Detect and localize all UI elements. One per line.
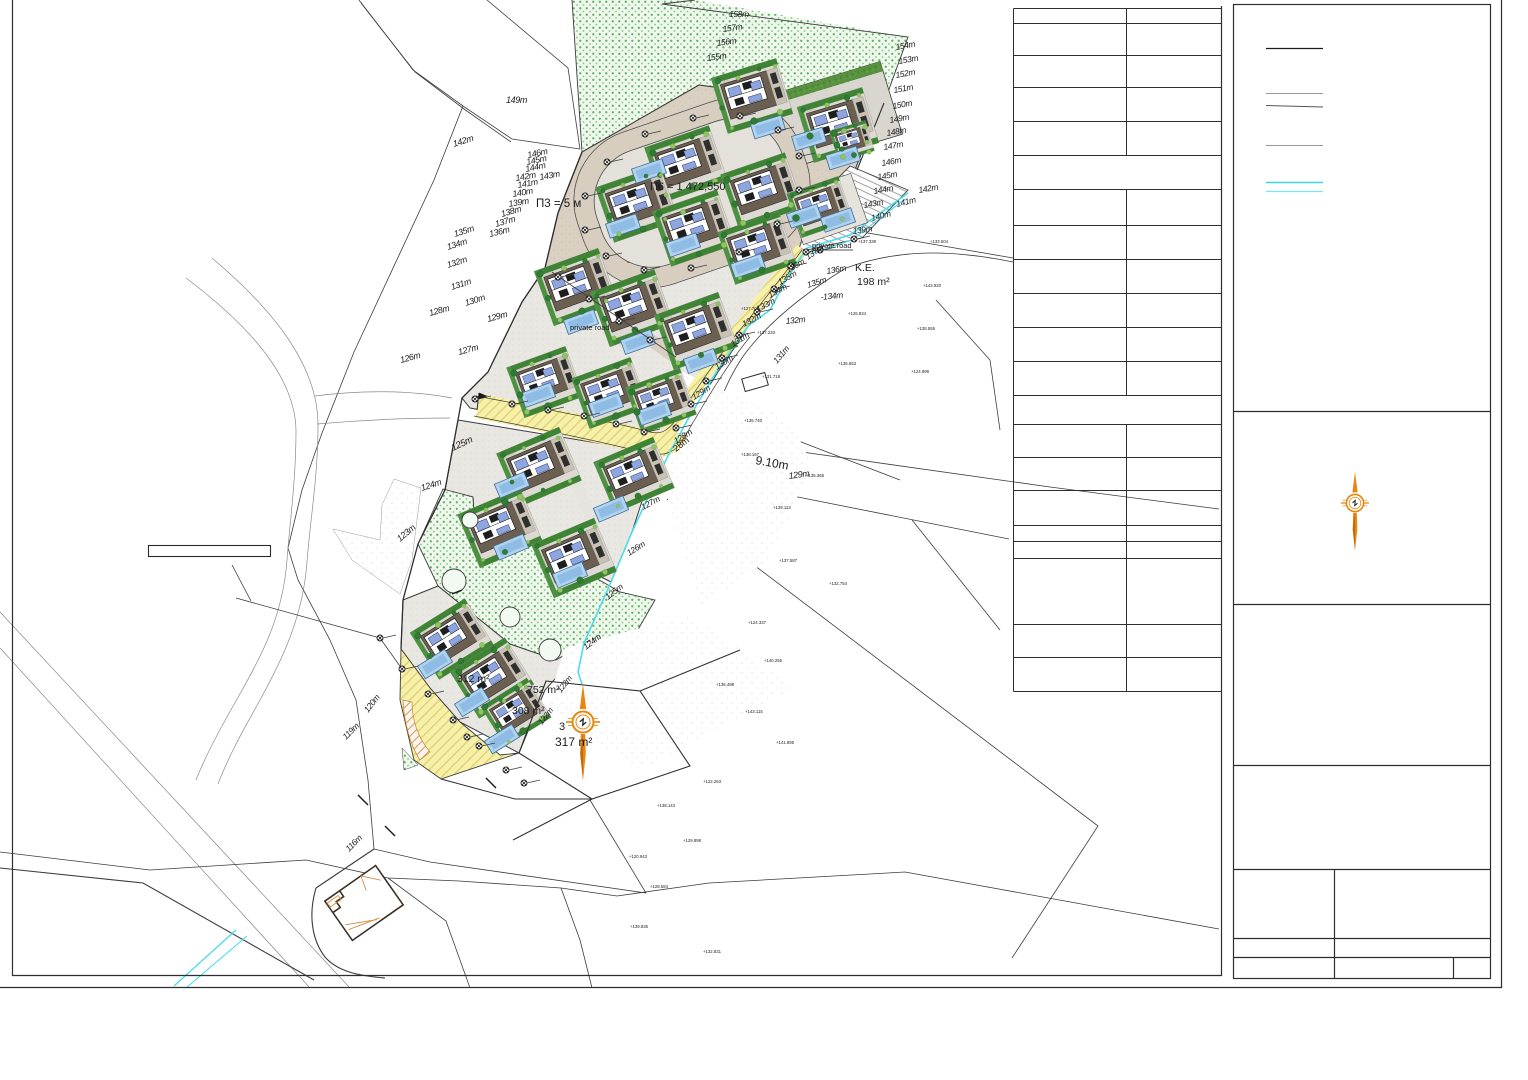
svg-text:+131.718: +131.718 xyxy=(762,374,781,379)
svg-text:+137.233: +137.233 xyxy=(757,330,776,335)
svg-text:+124.337: +124.337 xyxy=(748,620,767,625)
svg-text:752 m²: 752 m² xyxy=(527,684,560,696)
svg-text:private road: private road xyxy=(812,241,852,250)
svg-text:+137.339: +137.339 xyxy=(858,239,877,244)
svg-text:+139.836: +139.836 xyxy=(630,924,649,929)
svg-text:+136.499: +136.499 xyxy=(716,682,735,687)
svg-text:+138.555: +138.555 xyxy=(917,326,936,331)
svg-text:+138.143: +138.143 xyxy=(657,803,676,808)
svg-text:+132.754: +132.754 xyxy=(829,581,848,586)
svg-text:+135.365: +135.365 xyxy=(806,473,825,478)
svg-text:+140.255: +140.255 xyxy=(764,658,783,663)
svg-text:+129.898: +129.898 xyxy=(683,838,702,843)
svg-text:K.E.: K.E. xyxy=(855,262,875,274)
svg-text:+133.504: +133.504 xyxy=(930,239,949,244)
svg-text:132m: 132m xyxy=(785,314,806,326)
svg-text:+122.263: +122.263 xyxy=(703,779,722,784)
svg-text:+132.831: +132.831 xyxy=(703,949,722,954)
svg-text:+137.587: +137.587 xyxy=(779,558,798,563)
svg-text:+143.920: +143.920 xyxy=(923,283,942,288)
svg-text:+138.167: +138.167 xyxy=(741,452,760,457)
svg-text:149m: 149m xyxy=(506,95,528,105)
svg-text:+128.584: +128.584 xyxy=(650,884,669,889)
svg-text:198 m²: 198 m² xyxy=(857,276,890,288)
svg-text:317 m²: 317 m² xyxy=(555,735,592,749)
svg-text:+120.943: +120.943 xyxy=(629,854,648,859)
svg-text:П6 = 1 472,550: П6 = 1 472,550 xyxy=(650,181,726,193)
svg-text:+124.999: +124.999 xyxy=(911,369,930,374)
svg-text:+141.895: +141.895 xyxy=(776,740,795,745)
svg-text:+127.706: +127.706 xyxy=(741,306,760,311)
svg-text:+135.653: +135.653 xyxy=(838,361,857,366)
svg-text:+139.113: +139.113 xyxy=(773,505,791,510)
svg-text:+143.115: +143.115 xyxy=(745,709,763,714)
svg-text:158m: 158m xyxy=(729,9,749,19)
svg-text:312 m²: 312 m² xyxy=(457,673,490,685)
svg-text:3: 3 xyxy=(559,721,565,733)
svg-text:+135.740: +135.740 xyxy=(744,418,763,423)
svg-text:private road: private road xyxy=(570,323,610,332)
svg-text:+126.834: +126.834 xyxy=(848,311,867,316)
svg-text:308 m²: 308 m² xyxy=(512,705,545,717)
svg-text:П3 = 5 м: П3 = 5 м xyxy=(536,198,581,210)
